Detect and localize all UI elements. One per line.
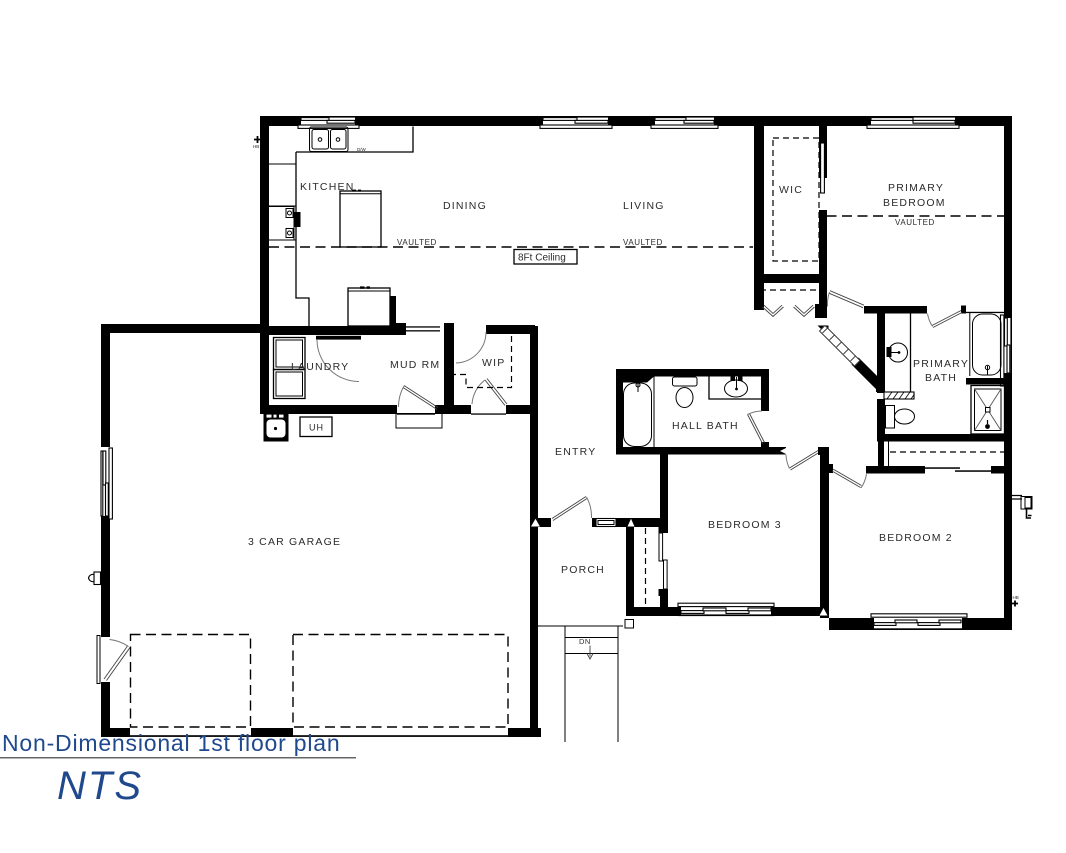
svg-text:VAULTED: VAULTED [895, 218, 935, 227]
svg-text:VAULTED: VAULTED [623, 238, 663, 247]
svg-text:PORCH: PORCH [561, 564, 605, 576]
svg-text:NTS: NTS [57, 764, 143, 808]
svg-text:HALL BATH: HALL BATH [672, 420, 739, 432]
svg-text:WIP: WIP [482, 357, 505, 369]
svg-text:ENTRY: ENTRY [555, 446, 596, 458]
svg-text:3 CAR GARAGE: 3 CAR GARAGE [248, 536, 341, 548]
svg-text:BEDROOM: BEDROOM [883, 197, 946, 209]
svg-text:HB: HB [1013, 595, 1019, 600]
svg-text:HB: HB [253, 144, 259, 149]
svg-text:D/W: D/W [357, 147, 367, 152]
svg-text:DN: DN [579, 637, 591, 646]
svg-text:BATH: BATH [925, 372, 957, 384]
svg-text:KITCHEN: KITCHEN [300, 181, 355, 193]
svg-text:DINING: DINING [443, 200, 487, 212]
svg-text:MUD RM: MUD RM [390, 359, 440, 371]
svg-text:BEDROOM 3: BEDROOM 3 [708, 519, 782, 531]
svg-text:Non-Dimensional 1st floor plan: Non-Dimensional 1st floor plan [2, 730, 341, 756]
svg-text:8Ft Ceiling: 8Ft Ceiling [518, 253, 566, 264]
svg-text:LIVING: LIVING [623, 200, 665, 212]
svg-text:UH: UH [309, 423, 324, 433]
svg-text:PRIMARY: PRIMARY [888, 182, 944, 194]
svg-text:PRIMARY: PRIMARY [913, 358, 969, 370]
svg-text:LAUNDRY: LAUNDRY [291, 361, 349, 373]
svg-text:VAULTED: VAULTED [397, 238, 437, 247]
svg-text:WIC: WIC [779, 184, 803, 196]
svg-text:BEDROOM 2: BEDROOM 2 [879, 532, 953, 544]
